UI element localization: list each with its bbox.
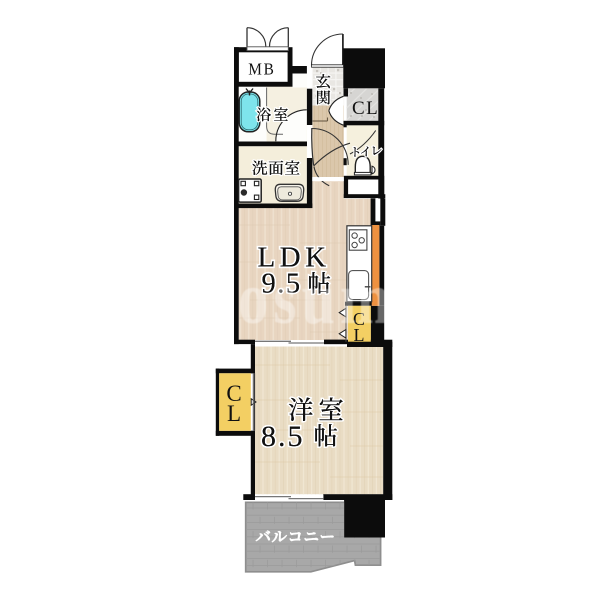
svg-text:CL: CL bbox=[352, 98, 379, 119]
svg-text:mosum: mosum bbox=[183, 258, 395, 340]
svg-text:MB: MB bbox=[248, 60, 276, 79]
svg-text:L: L bbox=[227, 401, 241, 426]
svg-text:8.5: 8.5 bbox=[261, 420, 305, 453]
